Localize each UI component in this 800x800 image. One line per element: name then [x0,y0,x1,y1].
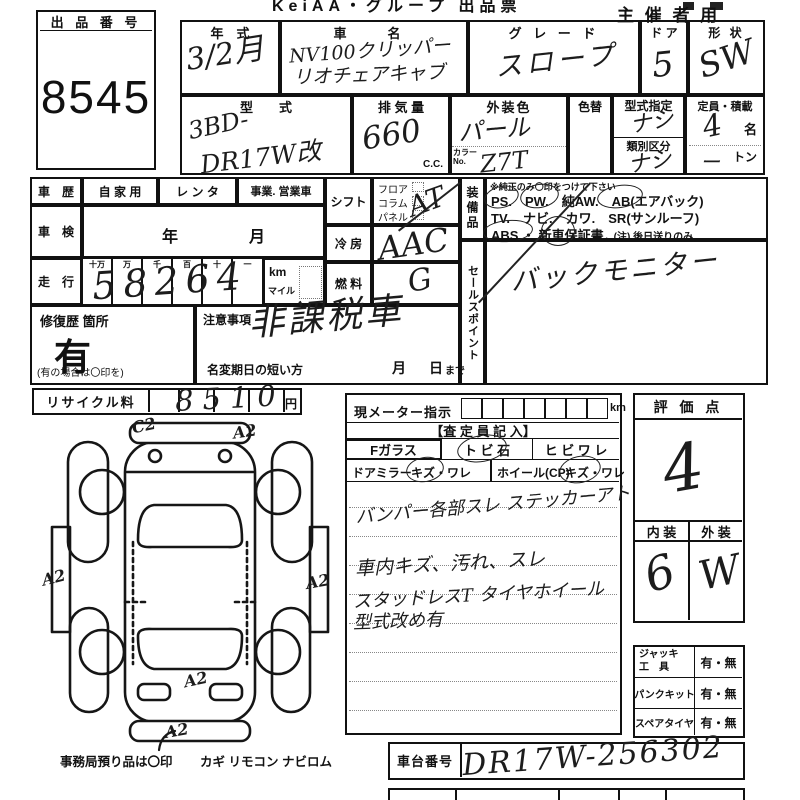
appraiser-note: スタッドレスT タイヤホイール [353,580,605,611]
office-note: 事務局預り品は〇印 [60,751,173,770]
shift-option-column: コラム [378,195,408,210]
score-value: 4 [658,434,709,504]
capacity-divider [689,145,761,146]
office-items: カギ リモコン ナビロム [200,751,332,770]
repair-cell: 修復歴 箇所 有 (有の場合は〇印を) [30,305,195,385]
load-unit: トン [733,148,757,165]
damage-code: A2 [164,721,190,741]
shift-option-panel: パネル [378,209,408,224]
recolor-cell: 色替 [568,95,612,175]
displacement-unit: C.C. [423,159,443,170]
lot-number-value: 8545 [38,67,154,127]
appraiser-note: 車内キズ、汚れ、スレ [355,550,546,579]
damage-code: A2 [183,670,209,691]
recycle-label: リサイクル料 [34,390,150,412]
shift-label: シフト [325,177,372,225]
jack-label: ジャッキ工 具 [635,647,695,678]
sales-label-cell: セールスポイント [460,240,485,385]
logo-title: KeiAA・グループ 出品票 [272,0,522,16]
meter-label: 現メーター指示 [354,402,452,421]
mileage-label: 走 行 [30,258,82,305]
chassis-label: 車台番号 [390,744,462,777]
rename-label: 名変期日の短い方 [207,361,303,378]
jack-options: 有・無 [695,647,742,678]
displacement-label: 排 気 量 [354,97,448,115]
meter-digit-box [524,398,545,419]
caution-label: 注意事項 [203,311,251,328]
damage-code: A2 [305,572,331,592]
meter-digit-box [482,398,503,419]
meter-digit-box [587,398,608,419]
displacement-value: 660 [360,116,423,156]
color-label: 外装色 [452,97,566,115]
recycle-value: 8510 [174,381,285,416]
mile-checkbox [299,266,322,299]
door-value: 5 [650,47,675,83]
shaken-month-label: 月 [249,223,265,247]
fuel-value: G [406,264,435,298]
load-value: ー [700,152,720,172]
history-private: 自 家 用 [82,177,158,205]
recycle-unit: 円 [285,395,297,412]
ac-value: AAC [376,223,450,265]
equipment-label: 装備品 [464,186,481,231]
km-label: km [269,265,286,279]
tools-panel: ジャッキ工 具 有・無 パンクキット 有・無 スペアタイヤ 有・無 [633,645,745,738]
color-no-value: Z7T [479,148,529,177]
history-label: 車 歴 [30,177,82,205]
history-rental: レ ン タ [158,177,237,205]
auction-sheet: KeiAA・グループ 出品票 主 催 者 用 出 品 番 号 8545 年 式 … [0,0,800,800]
appraiser-note: バンパー各部スレ ステッカーアト [355,485,631,527]
lot-number-box: 出 品 番 号 8545 [36,10,156,170]
puncture-kit-label: パンクキット [635,678,695,709]
car-name-line2: リオチェアキャブ [293,63,446,87]
rename-day: 日 [429,358,443,378]
interior-label: 内 装 [635,520,688,542]
door-label: ド ア [642,22,686,42]
puncture-kit-options: 有・無 [695,678,742,709]
shaken-cell: 年 月 [82,205,325,258]
equipment-label-cell: 装備品 [460,177,485,240]
mile-label: マイル [268,284,295,297]
color-no-label: カラーNo. [453,149,477,167]
meter-unit: km [610,402,626,414]
meter-digit-box [566,398,587,419]
damage-code: C2 [131,416,158,437]
shaken-label: 車 検 [30,205,82,258]
meter-digit-box [461,398,482,419]
meter-digit-box [545,398,566,419]
lot-number-label: 出 品 番 号 [40,13,152,31]
ac-label: 冷 房 [325,225,372,262]
score-label: 評 価 点 [635,395,742,420]
rename-month: 月 [392,358,406,378]
appraiser-note: 型式改め有 [353,611,444,632]
exterior-label: 外 装 [688,520,742,542]
sales-label: セールスポイント [465,265,481,361]
score-panel: 評 価 点 4 内 装 外 装 6 W [633,393,745,623]
shaken-year-label: 年 [162,223,178,247]
exterior-value: W [695,549,744,597]
recolor-label: 色替 [570,97,610,115]
bottom-partial-table [388,788,745,800]
meter-digit-box [503,398,524,419]
damage-code: A2 [232,422,258,441]
appraiser-panel: 現メーター指示 km 【査 定 員 記 入】 Fガラス ト ビ 石 ヒ ビ ワ … [345,393,622,735]
car-diagram [30,412,350,752]
interior-value: 6 [639,547,681,600]
capacity-label: 定員・積載 [687,97,763,114]
history-business: 事業. 営業車 [237,177,325,205]
mileage-value: 58264 [91,257,249,306]
capacity-unit: 名 [744,119,757,138]
spare-tire-label: スペアタイヤ [635,709,695,735]
capacity-cell: 定員・積載 名 トン [685,95,765,175]
mirror-label: ドアミラー [352,464,412,481]
color-value: パール [457,115,531,145]
repair-note: (有の場合は〇印を) [37,364,124,379]
